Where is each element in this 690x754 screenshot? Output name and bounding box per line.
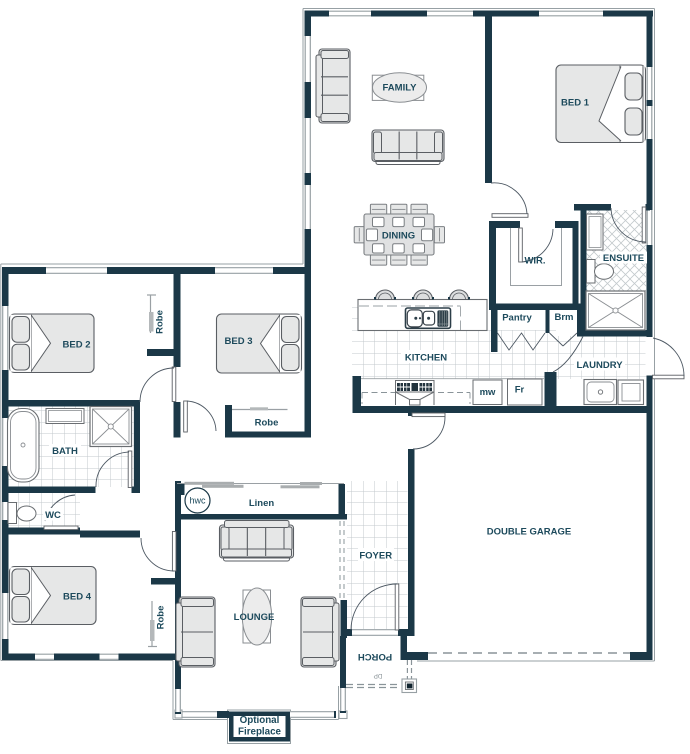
- svg-text:KITCHEN: KITCHEN: [405, 353, 447, 364]
- svg-text:WIR.: WIR.: [524, 256, 545, 267]
- svg-text:hwc: hwc: [189, 496, 206, 506]
- svg-text:Robe: Robe: [155, 310, 166, 334]
- svg-text:BED 2: BED 2: [63, 339, 91, 350]
- svg-text:Pantry: Pantry: [502, 313, 532, 324]
- svg-text:ENSUITE: ENSUITE: [603, 253, 644, 264]
- svg-text:Fireplace: Fireplace: [238, 727, 282, 738]
- svg-text:FAMILY: FAMILY: [383, 83, 418, 94]
- svg-text:BED 1: BED 1: [561, 98, 590, 109]
- svg-text:DINING: DINING: [382, 231, 415, 242]
- svg-text:DOUBLE GARAGE: DOUBLE GARAGE: [487, 527, 571, 538]
- svg-text:Linen: Linen: [249, 498, 275, 509]
- svg-text:Robe: Robe: [156, 606, 167, 630]
- svg-text:FOYER: FOYER: [359, 551, 392, 562]
- svg-text:Brm: Brm: [554, 312, 573, 323]
- svg-text:LOUNGE: LOUNGE: [234, 612, 275, 623]
- svg-text:DP: DP: [373, 672, 382, 679]
- svg-text:mw: mw: [480, 387, 496, 398]
- svg-text:PORCH: PORCH: [358, 651, 392, 662]
- svg-text:BED 4: BED 4: [63, 592, 92, 603]
- svg-text:BATH: BATH: [52, 446, 78, 457]
- svg-text:Fr: Fr: [515, 385, 525, 396]
- svg-text:Robe: Robe: [255, 418, 279, 429]
- svg-text:WC: WC: [45, 510, 61, 521]
- svg-text:Optional: Optional: [240, 715, 280, 726]
- svg-text:BED 3: BED 3: [225, 336, 253, 347]
- svg-text:LAUNDRY: LAUNDRY: [576, 360, 623, 371]
